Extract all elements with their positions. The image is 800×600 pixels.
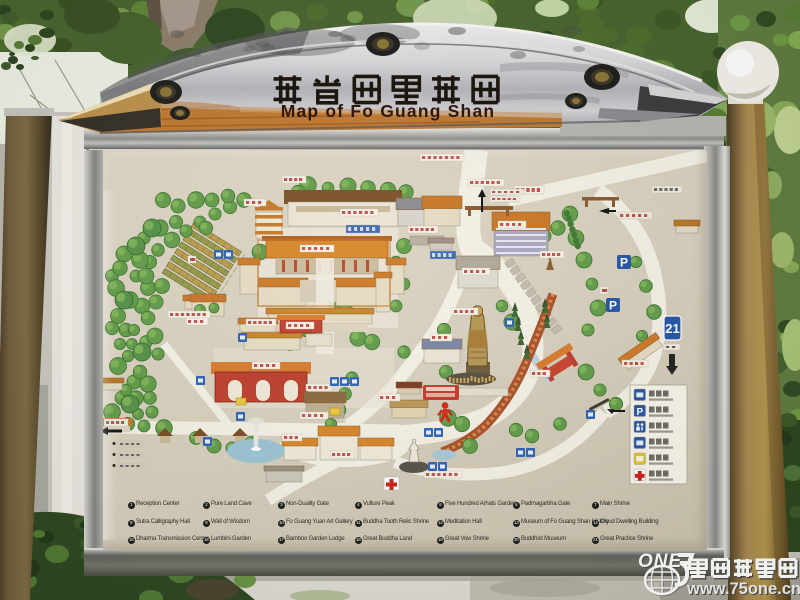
svg-text:ONE: ONE	[638, 551, 683, 572]
svg-text:www.75one.cn: www.75one.cn	[686, 580, 800, 598]
